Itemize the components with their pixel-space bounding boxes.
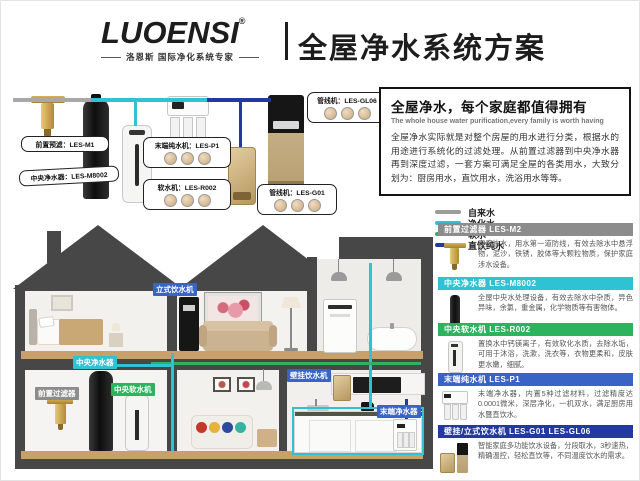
brand-logo-text: LUOENSI [101,15,239,50]
callout-label: 软水机：LES-R002 [147,182,227,192]
prefilter-body [41,103,54,129]
wall-divider-upper-right [307,257,317,359]
callout-terminal-p1: 末端纯水机：LES-P1 [143,137,231,168]
usage-icon [341,107,354,120]
usage-icon [324,107,337,120]
intro-box: 全屋净水，每个家庭都值得拥有 The whole house water pur… [379,87,631,196]
product-desc: 置换水中钙镁离子，有效软化水质，去除水垢，可用于沐浴，洗漱，洗衣等，衣物更柔和，… [478,339,633,373]
callout-label: 前置预滤：LES-M1 [25,139,105,149]
pendant-lamp [386,272,402,281]
product-card-header: 壁挂/立式饮水机 LES-G01 LES-GL06 [438,425,633,438]
diagram-wall-dispenser [228,147,256,205]
intro-subtitle: The whole house water purification,every… [391,118,619,125]
roof-left [13,225,183,289]
softener-panel [129,130,145,135]
usage-icon [164,194,177,207]
softener-slot [135,410,139,440]
usage-icons [147,194,227,207]
bed-blanket [59,319,103,345]
page-title: 全屋净水系统方案 [298,25,546,67]
product-card-header: 中央软水机 LES-R002 [438,323,633,336]
product-card-body: 家庭饮水，用水第一道防线，有效去除水中悬浮物，泥沙，铁锈，胶体等大颗粒物质，保护… [438,236,633,273]
pipe-soft-water-horizontal [151,362,421,365]
pillow-teal [235,422,246,433]
usage-icon [181,194,194,207]
utility-central-purifier-tank [89,371,113,451]
usage-icon [164,152,177,165]
product-card-body: 置换水中钙镁离子，有效软化水质，去除水垢，可用于沐浴，洗漱，洗衣等，衣物更柔和，… [438,336,633,373]
product-card-central-purifier: 中央净水器 LES-M8002 全屋中央水处理设备，有效去除水中杂质，异色异味，… [438,277,633,325]
pendant-cord [393,259,394,273]
pendant-cord [338,259,339,273]
product-card-body: 全屋中央水处理设备，有效去除水中杂质，异色异味，余氯，重金属，化学物质等有害物体… [438,290,633,325]
product-thumb-softener-icon [438,339,472,373]
tagline-dash-left [101,57,121,58]
product-card-softener: 中央软水机 LES-R002 置换水中钙镁离子，有效软化水质，去除水垢，可用于沐… [438,323,633,373]
dispenser-screen [183,305,195,311]
utility-prefilter-body [55,404,66,424]
pipe-purified-drop [134,102,137,126]
pillow-blue [222,422,233,433]
pipe-house-purified-vertical [369,263,372,409]
floor-lamp-pole [290,308,292,348]
bedroom-wall-art [51,295,73,311]
pillow-red [196,422,207,433]
sofa-back [203,321,273,331]
brand-tagline-row: 洛恩斯 国际净化系统专家 [101,51,259,63]
product-card-header: 末端纯水机 LES-P1 [438,373,633,386]
wall-divider-upper-left [167,287,177,359]
pipe-purified-water [91,98,213,102]
floor-lamp-base [284,348,298,351]
callout-label: 中央净水器：LES-M8002 [23,169,115,184]
washer-panel [328,305,352,309]
usage-icon [291,199,304,212]
pipe-purified-vertical-left [171,353,174,451]
usage-icon [181,152,194,165]
house-label-central-purifier: 中央净水器 [73,356,117,369]
header-divider [285,22,288,60]
product-card-body: 末端净水器，内置5种过滤材料，过滤精度达0.0001微米，深层净化，一机双水，满… [438,386,633,421]
bed-headboard [29,309,37,345]
floor-base-slab [15,459,433,469]
dispenser-tray [273,121,299,129]
callout-softener-r002: 软水机：LES-R002 [143,179,231,210]
product-card-header: 中央净水器 LES-M8002 [438,277,633,290]
kitchen-wall-dispenser [333,375,351,401]
house-label-standing-dispenser: 立式饮水机 [153,283,197,296]
utility-prefilter-tip [58,424,63,430]
brand-logo-block: LUOENSI® 洛恩斯 国际净化系统专家 [101,17,259,63]
pipe-tap-water [13,98,93,102]
legend-line-tap [435,210,461,214]
sofa [203,327,273,351]
ro-screen [172,102,184,109]
house-label-pre-filter: 前置过滤器 [35,387,79,400]
bedside-lamp [112,323,120,331]
loveseat [191,415,253,449]
registered-mark: ® [239,16,246,26]
callout-label: 管线机：LES-GL06 [311,95,383,105]
lounge-wall-art [237,377,255,392]
usage-icons [311,107,383,120]
brand-tagline: 洛恩斯 国际净化系统专家 [126,51,234,63]
product-card-header: 前置过滤器 LES-M2 [438,223,633,236]
legend-item-tap: 自来水 [435,207,495,217]
product-card-dispensers: 壁挂/立式饮水机 LES-G01 LES-GL06 智能家庭多功能饮水设备，分段… [438,425,633,475]
product-thumb-ro-icon [438,389,472,421]
washing-machine [323,299,357,353]
product-desc: 智能家庭多功能饮水设备，分段取水，3秒速热，精确温控，轻松直饮等，不同温度饮水的… [478,441,633,475]
pendant-lamp [256,381,272,390]
intro-title: 全屋净水，每个家庭都值得拥有 [391,96,619,116]
bed-pillow [38,316,54,328]
callout-label: 管线机：LES-G01 [261,187,333,197]
product-thumb-prefilter-icon [438,239,472,273]
product-thumb-dispensers-icon [438,441,472,475]
sink-faucet [315,399,317,406]
brand-logo: LUOENSI® [101,17,259,48]
callout-pipeline-gl06: 管线机：LES-GL06 [307,92,387,123]
house-label-softener: 中央软水机 [111,383,155,396]
side-table [257,429,277,447]
softener-slot [135,144,139,186]
usage-icon [308,199,321,212]
callout-pipeline-g01: 管线机：LES-G01 [257,184,337,215]
nightstand [109,333,123,347]
wall-divider-lower-right [279,369,287,459]
product-thumb-tank-icon [438,293,472,325]
product-desc: 全屋中央水处理设备，有效去除水中杂质，异色异味，余氯，重金属，化学物质等有害物体… [478,293,633,325]
sofa-arm [269,325,277,347]
poster-canvas: LUOENSI® 洛恩斯 国际净化系统专家 全屋净水系统方案 [0,0,640,481]
sofa-arm [199,325,207,347]
washer-lid-line [330,314,350,317]
bathtub-faucet [390,323,394,329]
wall-left [15,285,25,467]
product-desc: 家庭饮水，用水第一道防线，有效去除水中悬浮物，泥沙，铁锈，胶体等大颗粒物质，保护… [478,239,633,273]
callout-label: 末端纯水机：LES-P1 [147,140,227,150]
house-label-wall-dispenser: 壁挂饮水机 [287,369,331,382]
usage-icon [198,152,211,165]
utility-softener [125,395,149,451]
house-label-terminal-purifier: 末端净水器 [377,405,421,418]
product-desc: 末端净水器，内置5种过滤材料，过滤精度达0.0001微米，深层净化，一机双水，满… [478,389,633,421]
product-card-prefilter: 前置过滤器 LES-M2 家庭饮水，用水第一道防线，有效去除水中悬浮物，泥沙，铁… [438,223,633,273]
diagram-standing-dispenser [268,95,304,189]
usage-icon [274,199,287,212]
pillow-yellow [209,422,220,433]
usage-icon [198,194,211,207]
product-card-body: 智能家庭多功能饮水设备，分段取水，3秒速热，精确温控，轻松直饮等，不同温度饮水的… [438,438,633,475]
range-hood [353,377,401,393]
tagline-dash-right [239,57,259,58]
intro-body: 全屋净水实际就是对整个房屋的用水进行分类，根据水的用途进行系统化的过滤处理。从前… [391,131,619,186]
living-standing-dispenser [179,297,199,351]
pipe-pure-drop [239,102,242,147]
bathtub [367,327,417,351]
callout-prefilter-m1: 前置预滤：LES-M1 [21,136,109,152]
usage-icon [358,107,371,120]
roof-right-flat [339,237,433,259]
lounge-wall-art [213,377,231,392]
product-card-terminal-purifier: 末端纯水机 LES-P1 末端净水器，内置5种过滤材料，过滤精度达0.0001微… [438,373,633,421]
wall-dispenser-band [233,192,251,200]
usage-icons [147,152,227,165]
pendant-lamp [331,272,347,281]
usage-icons [261,199,333,212]
